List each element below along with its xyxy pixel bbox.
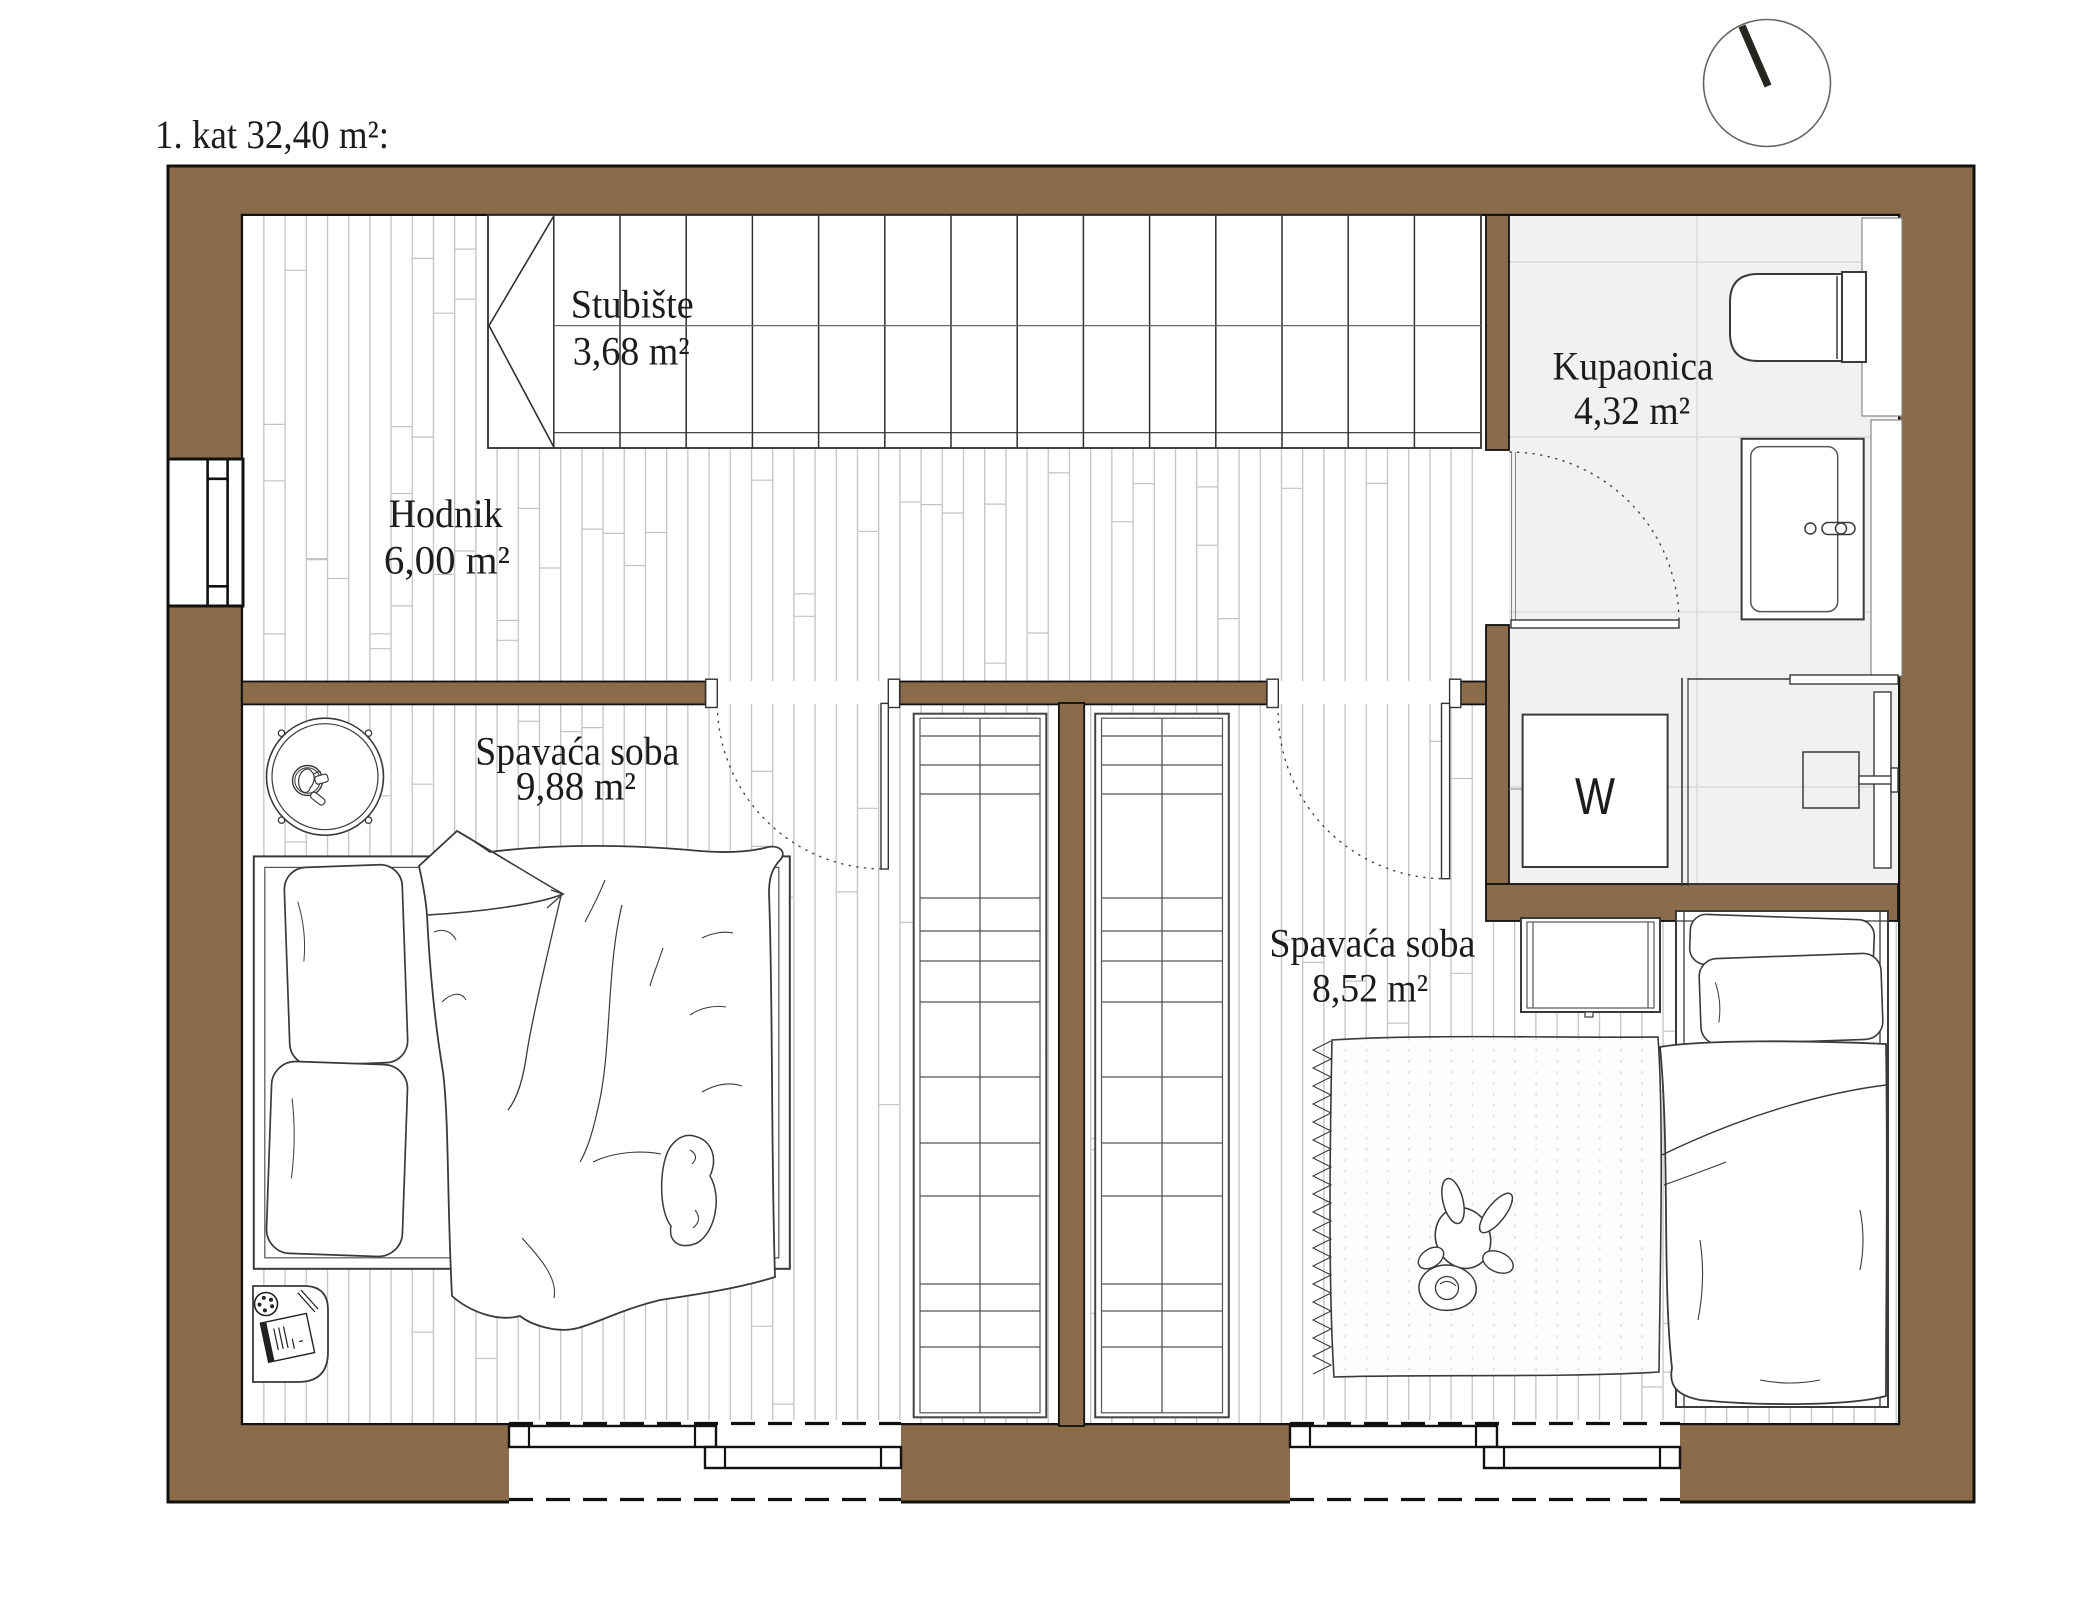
svg-text:Spavaća soba: Spavaća soba (1269, 920, 1475, 965)
svg-text:3,68 m²: 3,68 m² (573, 329, 690, 374)
svg-text:W: W (1575, 768, 1615, 826)
svg-text:Hodnik: Hodnik (389, 491, 503, 536)
svg-text:6,00 m²: 6,00 m² (384, 537, 510, 582)
svg-text:1. kat 32,40 m²:: 1. kat 32,40 m²: (155, 112, 389, 157)
svg-text:Kupaonica: Kupaonica (1553, 344, 1714, 389)
svg-text:8,52 m²: 8,52 m² (1312, 965, 1428, 1010)
svg-text:9,88 m²: 9,88 m² (516, 764, 636, 809)
svg-text:Stubište: Stubište (571, 282, 694, 327)
svg-text:4,32 m²: 4,32 m² (1574, 388, 1690, 433)
